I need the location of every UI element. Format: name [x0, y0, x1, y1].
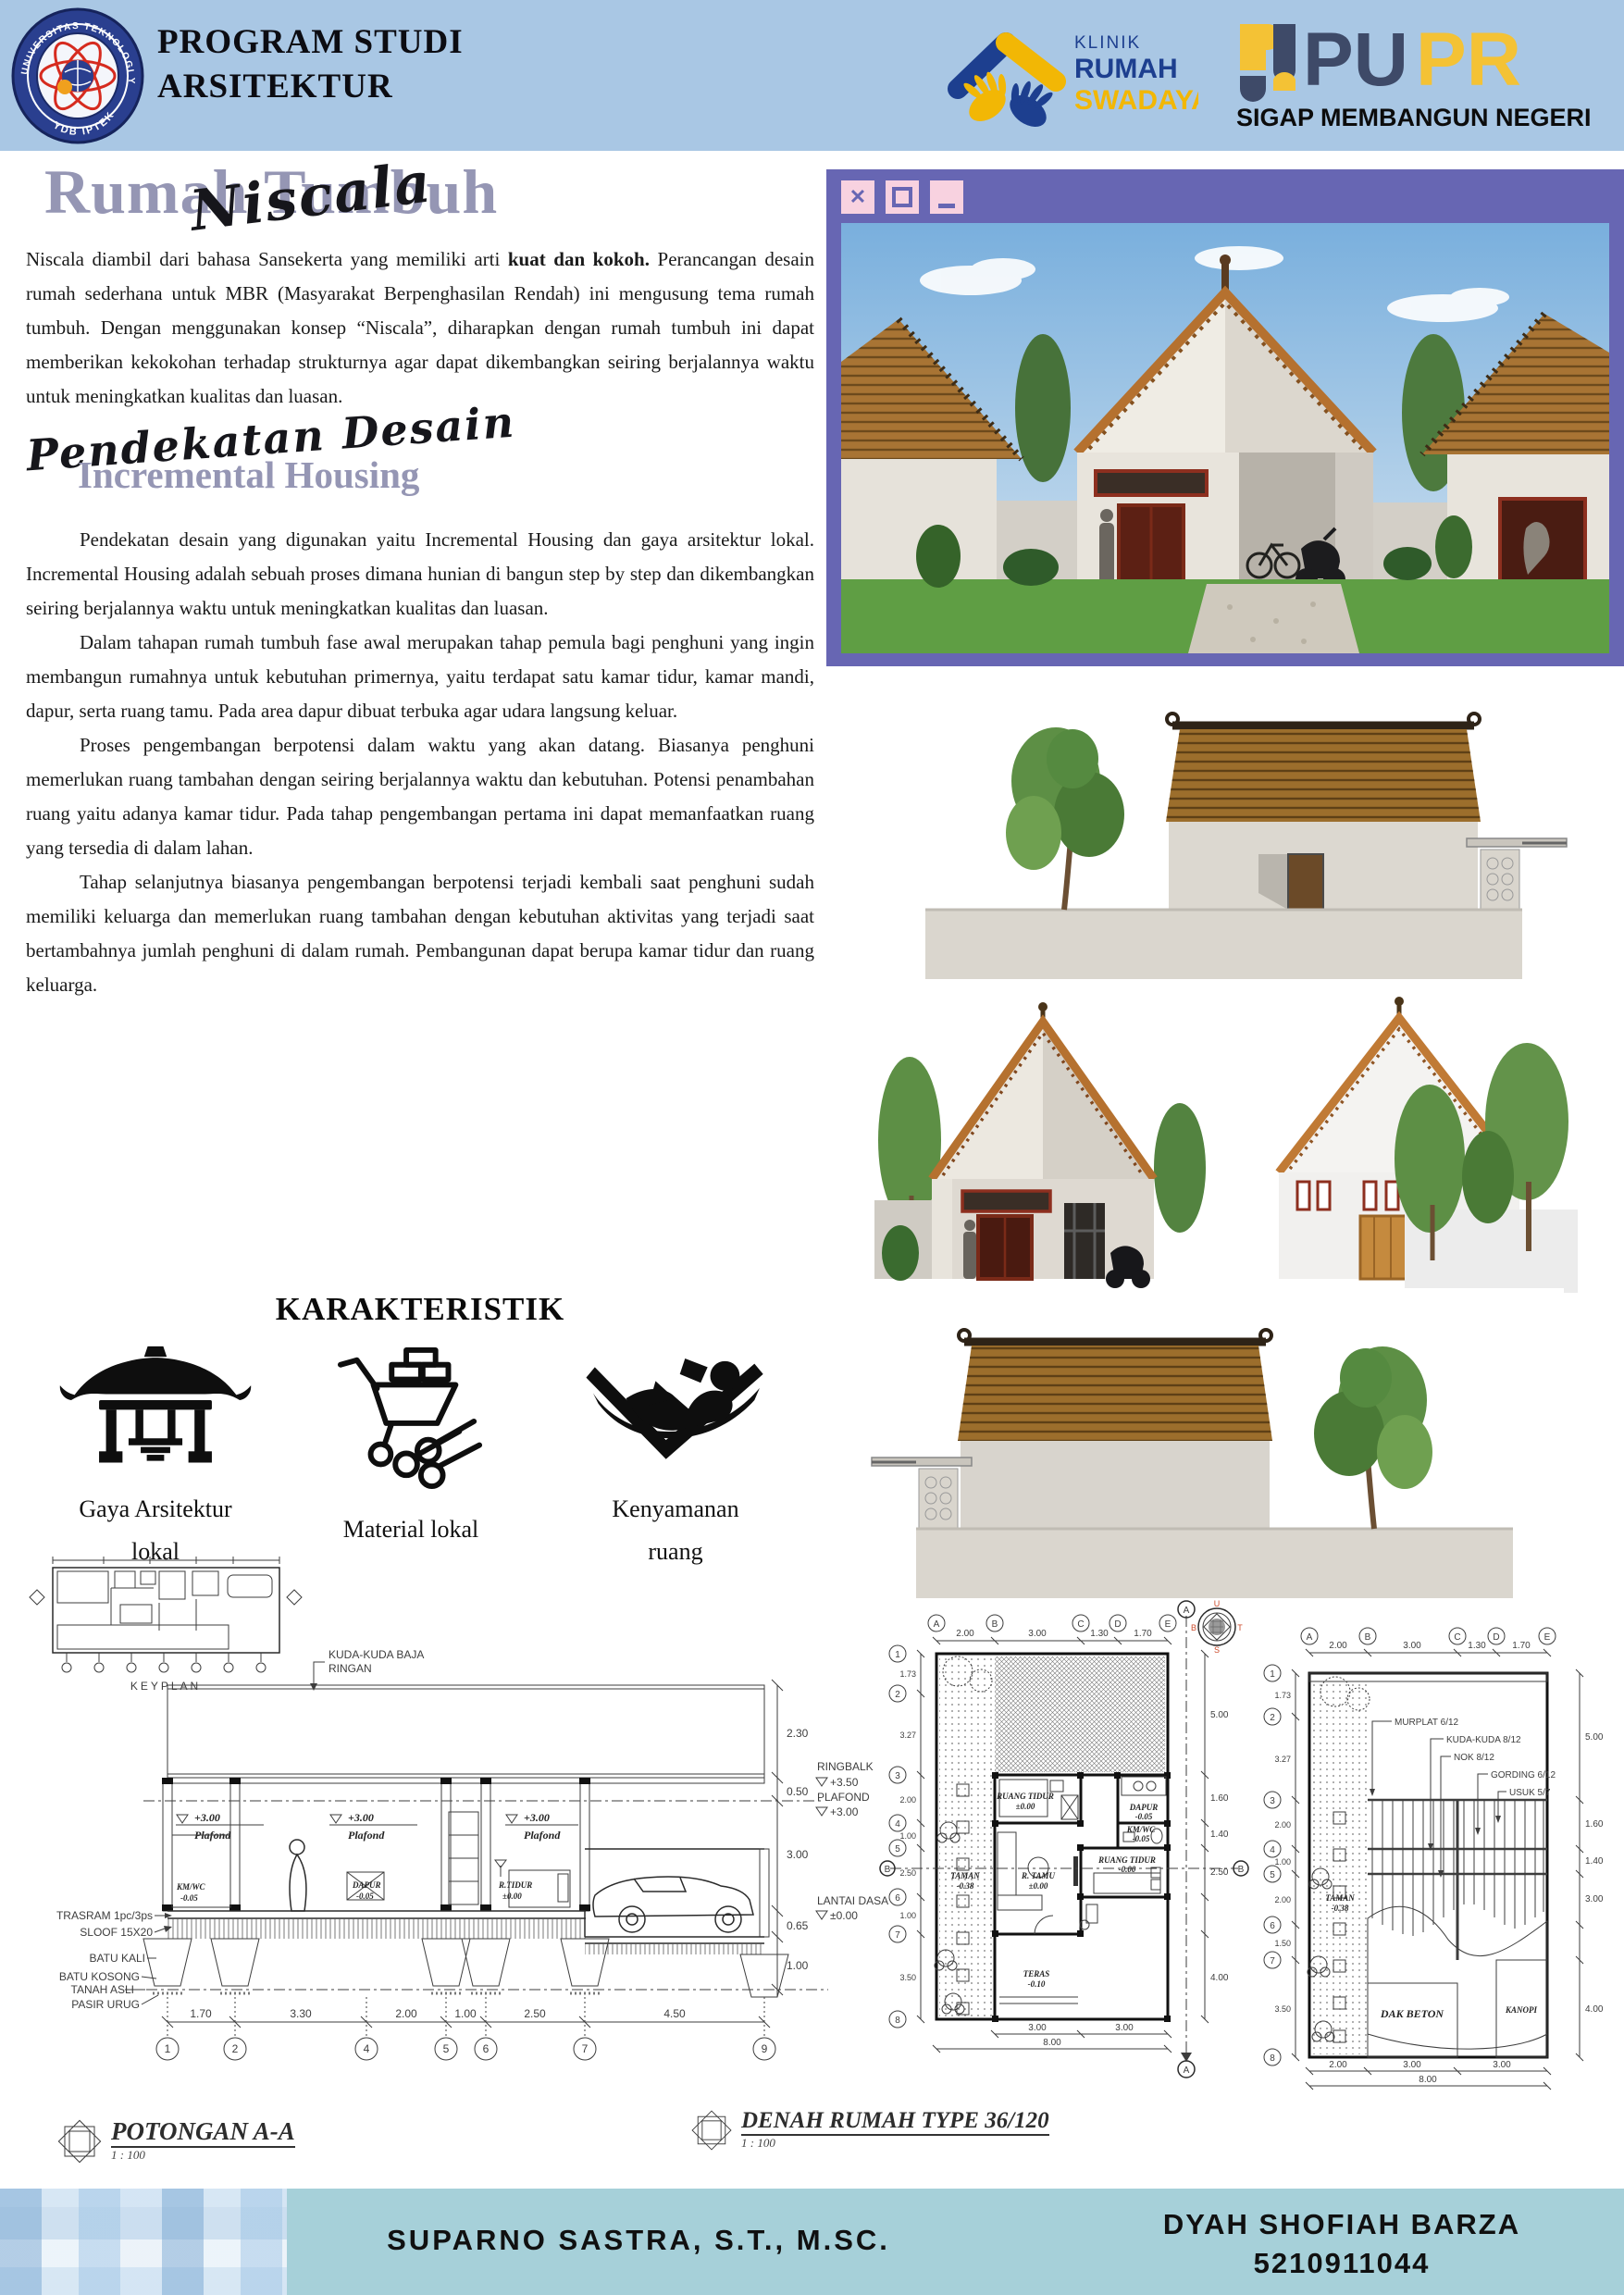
svg-text:1.50: 1.50	[1274, 1939, 1291, 1948]
svg-text:GORDING 6/12: GORDING 6/12	[1491, 1770, 1556, 1780]
plan-title: DENAH RUMAH TYPE 36/120	[741, 2108, 1049, 2136]
svg-text:1.70: 1.70	[190, 2007, 212, 2020]
svg-text:6: 6	[483, 2042, 490, 2055]
svg-text:BATU KOSONG: BATU KOSONG	[59, 1970, 140, 1983]
svg-text:±0.00: ±0.00	[830, 1909, 858, 1922]
room-label-kmwc: KM/WC	[176, 1882, 206, 1892]
room-label-dapur: DAPUR	[352, 1880, 381, 1890]
svg-text:SLOOF 15X20: SLOOF 15X20	[80, 1926, 153, 1939]
characteristic-item: Material lokal	[295, 1345, 527, 1551]
svg-text:USUK 5/7: USUK 5/7	[1509, 1788, 1551, 1798]
svg-text:5: 5	[895, 1844, 900, 1855]
section-heading: Pendekatan Desain Incremental Housing	[26, 419, 814, 508]
svg-text:3.30: 3.30	[290, 2007, 312, 2020]
svg-text:1.40: 1.40	[1210, 1830, 1229, 1840]
rumah-text: RUMAH	[1074, 54, 1178, 84]
svg-text:+3.00: +3.00	[348, 1811, 374, 1824]
svg-text:2.30: 2.30	[787, 1727, 809, 1740]
svg-text:3.00: 3.00	[1403, 2060, 1421, 2070]
svg-text:2.50: 2.50	[524, 2007, 546, 2020]
student-identity: DYAH SHOFIAH BARZA 5210911044	[1073, 2205, 1610, 2283]
footer-bar: SUPARNO SASTRA, S.T., M.SC. DYAH SHOFIAH…	[0, 2189, 1624, 2295]
body-text-column: Niscala diambil dari bahasa Sansekerta y…	[26, 242, 814, 1002]
svg-text:MURPLAT 6/12: MURPLAT 6/12	[1395, 1718, 1459, 1728]
svg-text:0.50: 0.50	[787, 1785, 809, 1798]
svg-text:3.00: 3.00	[1403, 1641, 1421, 1651]
javanese-pavilion-icon	[49, 1345, 262, 1483]
svg-text:2.50: 2.50	[899, 1868, 916, 1878]
characteristic-item: Kenyamananruang	[537, 1345, 814, 1572]
svg-text:E: E	[1165, 1619, 1172, 1630]
pupr-pr-text: PR	[1416, 18, 1521, 102]
svg-text:+3.00: +3.00	[194, 1811, 220, 1824]
swadaya-text: SWADAYA	[1074, 85, 1198, 116]
characteristic-label: Gaya Arsitektur	[79, 1495, 231, 1522]
section-title-block: POTONGAN A-A 1 : 100	[56, 2117, 295, 2165]
roof-structure-labels: MURPLAT 6/12 KUDA-KUDA 8/12 NOK 8/12 GOR…	[1370, 1718, 1556, 1878]
svg-text:3.50: 3.50	[899, 1973, 916, 1982]
svg-text:PASIR URUG: PASIR URUG	[71, 1998, 140, 2011]
svg-text:4.00: 4.00	[1585, 2004, 1604, 2015]
svg-text:2.00: 2.00	[956, 1629, 974, 1639]
plafond-level: +3.00 Plafond	[176, 1811, 264, 1842]
svg-text:3.00: 3.00	[1585, 1894, 1604, 1904]
wall-column	[440, 1778, 452, 1911]
svg-text:-0.05: -0.05	[1133, 1834, 1150, 1843]
svg-text:2.00: 2.00	[1274, 1820, 1291, 1830]
hands-house-icon	[958, 43, 1056, 133]
svg-text:1: 1	[895, 1650, 900, 1660]
svg-text:6: 6	[1270, 1921, 1275, 1931]
footer-plaid-decoration	[0, 2189, 287, 2295]
svg-text:+3.50: +3.50	[830, 1776, 859, 1789]
svg-text:D: D	[1114, 1619, 1121, 1630]
svg-text:U: U	[1214, 1599, 1221, 1608]
svg-text:PLAFOND: PLAFOND	[817, 1791, 870, 1804]
pupr-mark-icon	[1240, 24, 1295, 102]
svg-text:3.00: 3.00	[1028, 1629, 1047, 1639]
lecturer-name: SUPARNO SASTRA, S.T., M.SC.	[305, 2224, 972, 2257]
klinik-text: KLINIK	[1074, 33, 1141, 53]
wall-column	[579, 1778, 590, 1911]
svg-text:1.30: 1.30	[1090, 1629, 1109, 1639]
svg-text:1.70: 1.70	[1512, 1641, 1531, 1651]
characteristics-section: KARAKTERISTIK Gaya Arsitekturlokal	[26, 1291, 814, 1572]
section-drawing-potongan: KUDA-KUDA BAJA RINGAN +3.00 Plafond +3.0…	[42, 1645, 888, 2164]
paragraph-incremental: Pendekatan desain yang digunakan yaitu I…	[26, 523, 814, 626]
render-window-frame: ✕	[826, 169, 1624, 666]
svg-text:8.00: 8.00	[1043, 2038, 1061, 2048]
program-title-line2: ARSITEKTUR	[157, 65, 464, 109]
svg-text:3: 3	[1270, 1796, 1275, 1806]
pupr-tagline: SIGAP MEMBANGUN NEGERI	[1236, 104, 1592, 131]
roof-plan-drawing: AB CD E 2.00 3.00 1.30 1.70 12 34 56 78 …	[1254, 1599, 1624, 2177]
svg-text:C: C	[1077, 1619, 1084, 1630]
plafond-level: +3.00 Plafond	[329, 1811, 417, 1842]
svg-text:5.00: 5.00	[1210, 1710, 1229, 1720]
svg-text:2: 2	[895, 1690, 900, 1700]
render-rear-elevation	[1240, 983, 1578, 1293]
svg-text:TAMAN: TAMAN	[950, 1871, 980, 1880]
svg-text:2.00: 2.00	[899, 1795, 916, 1805]
svg-text:+3.00: +3.00	[524, 1811, 550, 1824]
svg-text:KUDA-KUDA 8/12: KUDA-KUDA 8/12	[1446, 1735, 1521, 1745]
plafond-level: +3.00 Plafond	[505, 1811, 578, 1842]
svg-text:A: A	[1307, 1632, 1313, 1643]
pupr-logo: PU PR SIGAP MEMBANGUN NEGERI	[1233, 7, 1621, 146]
plan-grid-bottom: 3.00 3.00 8.00	[933, 2023, 1172, 2053]
pupr-pu-text: PU	[1303, 18, 1408, 102]
svg-text:KM/WC: KM/WC	[1126, 1825, 1157, 1834]
svg-text:2: 2	[1270, 1713, 1275, 1723]
svg-text:C: C	[1454, 1632, 1460, 1643]
svg-text:-0.10: -0.10	[1028, 1979, 1046, 1989]
svg-text:7: 7	[895, 1930, 900, 1941]
svg-text:1.73: 1.73	[899, 1669, 916, 1679]
roofplan-grid-left: 12 34 56 78 1.73 3.27 2.00 1.00 2.00 1.5…	[1264, 1665, 1299, 2065]
section-bottom-dimensions: 1.70 3.30 2.00 1.00 2.50 4.50	[162, 1997, 770, 2039]
wheelbarrow-logs-icon	[332, 1345, 490, 1491]
roofplan-grid-top: AB CD E 2.00 3.00 1.30 1.70	[1301, 1628, 1556, 1656]
svg-text:6: 6	[895, 1893, 900, 1904]
svg-text:-0.05: -0.05	[356, 1892, 374, 1901]
svg-text:8: 8	[895, 2016, 900, 2026]
svg-text:BATU KALI: BATU KALI	[90, 1952, 145, 1965]
svg-text:1.73: 1.73	[1274, 1691, 1291, 1700]
svg-text:1.00: 1.00	[899, 1911, 916, 1920]
svg-text:1.70: 1.70	[1134, 1629, 1152, 1639]
svg-text:-0.38: -0.38	[1332, 1904, 1349, 1913]
svg-text:D: D	[1493, 1632, 1499, 1643]
svg-text:1.60: 1.60	[1210, 1793, 1229, 1804]
svg-text:-0.38: -0.38	[957, 1881, 974, 1891]
svg-text:±0.00: ±0.00	[1029, 1881, 1048, 1891]
roofplan-grid-bottom: 2.00 3.00 3.00 8.00	[1306, 2060, 1551, 2090]
svg-text:3.27: 3.27	[899, 1731, 916, 1740]
svg-text:4: 4	[895, 1819, 900, 1830]
render-front-elevation	[874, 983, 1212, 1293]
svg-text:2: 2	[232, 2042, 239, 2055]
student-name: DYAH SHOFIAH BARZA	[1073, 2205, 1610, 2244]
svg-text:TERAS: TERAS	[1023, 1969, 1050, 1979]
svg-text:1: 1	[1270, 1669, 1275, 1680]
plan-grid-left: 12 34 56 78 1.73 3.27 2.00 1.00 2.50 1.0…	[889, 1645, 924, 2028]
poster-page: UNIVERSITAS TEKNOLOGI YOGYAKARTA YDB IPT…	[0, 0, 1624, 2295]
compass-rose: U B T S	[1191, 1599, 1243, 1655]
characteristic-item: Gaya Arsitekturlokal	[26, 1345, 285, 1572]
header-bar: UNIVERSITAS TEKNOLOGI YOGYAKARTA YDB IPT…	[0, 0, 1624, 151]
render-side-elevation-right	[870, 1288, 1564, 1607]
svg-text:1.60: 1.60	[1585, 1819, 1604, 1830]
material-labels: TRASRAM 1pc/3ps SLOOF 15X20 BATU KALI BA…	[56, 1909, 172, 2011]
svg-text:3.00: 3.00	[1493, 2060, 1511, 2070]
svg-text:1.30: 1.30	[1468, 1641, 1486, 1651]
svg-text:Plafond: Plafond	[524, 1829, 561, 1842]
paragraph-pengembangan: Proses pengembangan berpotensi dalam wak…	[26, 728, 814, 865]
svg-text:7: 7	[1270, 1956, 1275, 1966]
svg-text:0.65: 0.65	[787, 1919, 809, 1932]
svg-text:1.00: 1.00	[899, 1831, 916, 1841]
klinik-rumah-swadaya-logo: KLINIK RUMAH SWADAYA	[939, 17, 1198, 135]
person-relaxing-icon	[569, 1345, 782, 1483]
dak-beton-label: DAK BETON	[1380, 2007, 1444, 2020]
svg-text:T: T	[1237, 1623, 1243, 1632]
maximize-icon[interactable]	[886, 180, 919, 214]
svg-text:TANAH ASLI: TANAH ASLI	[71, 1983, 134, 1996]
title-star-icon	[689, 2108, 734, 2152]
svg-text:RINGBALK: RINGBALK	[817, 1760, 874, 1773]
wall-column	[162, 1778, 173, 1911]
svg-text:-0.00: -0.00	[1119, 1865, 1136, 1874]
svg-text:1: 1	[165, 2042, 171, 2055]
svg-text:1.00: 1.00	[1274, 1857, 1291, 1867]
grid-bubbles: 1 2 4 5 6 7 9	[156, 2038, 775, 2060]
plan-grid-right: 5.00 1.60 1.40 2.50 4.00	[1201, 1650, 1229, 2023]
wall-column	[480, 1778, 491, 1911]
svg-text:4.50: 4.50	[663, 2007, 686, 2020]
svg-text:3.00: 3.00	[1028, 2023, 1047, 2033]
svg-text:RUANG TIDUR: RUANG TIDUR	[1097, 1855, 1156, 1865]
svg-text:1.00: 1.00	[787, 1959, 809, 1972]
svg-text:9: 9	[762, 2042, 768, 2055]
section-heading-title: Incremental Housing	[78, 453, 419, 497]
svg-text:2.50: 2.50	[1210, 1867, 1229, 1878]
svg-text:±0.00: ±0.00	[1016, 1802, 1035, 1811]
plan-scale: 1 : 100	[741, 2136, 1049, 2151]
svg-text:R. TAMU: R. TAMU	[1021, 1871, 1056, 1880]
floor-plan-drawing: AB CD E 2.00 3.00 1.30 1.70 12 34 56 78 …	[879, 1599, 1249, 2177]
svg-text:5: 5	[1270, 1870, 1275, 1880]
svg-text:3.27: 3.27	[1274, 1755, 1291, 1764]
svg-text:B: B	[1238, 1865, 1245, 1875]
svg-text:3: 3	[895, 1771, 900, 1781]
svg-text:E: E	[1544, 1632, 1551, 1643]
characteristic-label: Kenyamanan	[612, 1495, 738, 1522]
svg-text:B: B	[1191, 1623, 1196, 1632]
svg-text:±0.00: ±0.00	[502, 1892, 522, 1901]
svg-text:1.00: 1.00	[454, 2007, 477, 2020]
svg-text:S: S	[1214, 1645, 1220, 1655]
svg-text:5: 5	[443, 2042, 450, 2055]
svg-text:2.00: 2.00	[1329, 2060, 1347, 2070]
svg-text:3.00: 3.00	[787, 1848, 809, 1861]
svg-text:NOK 8/12: NOK 8/12	[1454, 1753, 1494, 1763]
svg-text:B: B	[992, 1619, 998, 1630]
car-drawing	[593, 1877, 753, 1932]
truss-label: KUDA-KUDA BAJA	[329, 1648, 424, 1661]
program-title-line1: PROGRAM STUDI	[157, 20, 464, 65]
svg-text:4: 4	[364, 2042, 370, 2055]
uty-university-logo: UNIVERSITAS TEKNOLOGI YOGYAKARTA YDB IPT…	[11, 7, 145, 144]
characteristics-title: KARAKTERISTIK	[26, 1291, 814, 1328]
svg-text:+3.00: +3.00	[830, 1805, 859, 1818]
program-title: PROGRAM STUDI ARSITEKTUR	[157, 20, 464, 109]
characteristic-label: Material lokal	[343, 1516, 479, 1543]
svg-text:3.00: 3.00	[1115, 2023, 1134, 2033]
svg-text:4: 4	[1270, 1845, 1275, 1855]
svg-text:4.00: 4.00	[1210, 1973, 1229, 1983]
svg-text:B: B	[885, 1865, 891, 1875]
close-icon[interactable]: ✕	[841, 180, 874, 214]
svg-text:A: A	[1184, 2065, 1190, 2076]
svg-text:2.00: 2.00	[1329, 1641, 1347, 1651]
svg-text:RINGAN: RINGAN	[329, 1662, 372, 1675]
render-front-perspective	[841, 223, 1609, 653]
student-id: 5210911044	[1073, 2244, 1610, 2283]
section-right-dimensions: 2.30 0.50 3.00 0.65 1.00 RINGBALK +3.50 …	[772, 1680, 888, 1997]
svg-text:3.50: 3.50	[1274, 2004, 1291, 2014]
intro-paragraph: Niscala diambil dari bahasa Sansekerta y…	[26, 242, 814, 414]
svg-text:8.00: 8.00	[1419, 2075, 1437, 2085]
svg-text:A: A	[934, 1619, 940, 1630]
svg-text:7: 7	[582, 2042, 589, 2055]
paragraph-fase-awal: Dalam tahapan rumah tumbuh fase awal mer…	[26, 626, 814, 728]
plan-grid-top: AB CD E 2.00 3.00 1.30 1.70	[928, 1615, 1176, 1644]
paragraph-tahap-selanjutnya: Tahap selanjutnya biasanya pengembangan …	[26, 865, 814, 1002]
svg-text:DAPUR: DAPUR	[1129, 1803, 1159, 1812]
roofplan-grid-right: 5.00 1.60 1.40 3.00 4.00	[1576, 1669, 1604, 2061]
plan-title-block: DENAH RUMAH TYPE 36/120 1 : 100	[689, 2108, 1049, 2152]
kanopi-label: KANOPI	[1505, 2005, 1538, 2015]
title-star-icon	[56, 2117, 104, 2165]
section-title: POTONGAN A-A	[111, 2117, 295, 2148]
minimize-icon[interactable]	[930, 180, 963, 214]
svg-text:RUANG TIDUR: RUANG TIDUR	[996, 1792, 1054, 1801]
svg-text:LANTAI DASAR: LANTAI DASAR	[817, 1894, 888, 1907]
svg-text:B: B	[1365, 1632, 1371, 1643]
svg-text:-0.05: -0.05	[1135, 1812, 1153, 1821]
intro-bold: kuat dan kokoh.	[508, 248, 650, 270]
svg-text:8: 8	[1270, 2053, 1275, 2064]
room-label-rtidur: R.TIDUR	[498, 1880, 532, 1890]
svg-text:A: A	[1184, 1606, 1190, 1616]
svg-text:2.00: 2.00	[395, 2007, 417, 2020]
render-side-elevation-left	[874, 674, 1568, 988]
svg-text:TRASRAM 1pc/3ps: TRASRAM 1pc/3ps	[56, 1909, 153, 1922]
svg-text:1.40: 1.40	[1585, 1856, 1604, 1867]
section-scale: 1 : 100	[111, 2148, 295, 2163]
svg-text:-0.05: -0.05	[180, 1893, 198, 1903]
wall-column	[229, 1778, 241, 1911]
svg-text:5.00: 5.00	[1585, 1732, 1604, 1743]
svg-text:2.00: 2.00	[1274, 1895, 1291, 1904]
svg-text:Plafond: Plafond	[348, 1829, 385, 1842]
